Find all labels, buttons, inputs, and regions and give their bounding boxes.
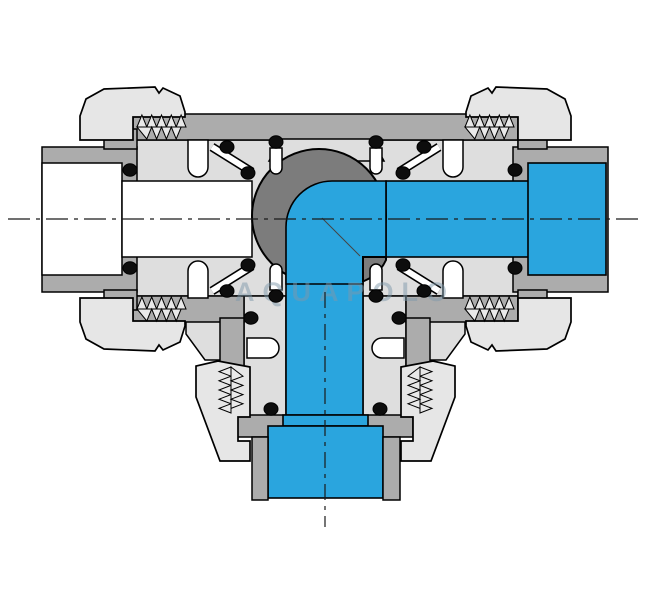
- bottom-socket-wall-right: [383, 437, 400, 500]
- o-ring-seal-1: [220, 141, 234, 153]
- stem-seal-cavity-top-right: [370, 148, 382, 174]
- o-ring-seal-14: [123, 262, 137, 274]
- cavity-bottom-left: [188, 261, 208, 298]
- valve-section-drawing: AQUAPOLO: [0, 0, 650, 591]
- body-lobe-left: [186, 318, 222, 360]
- stem-seal-cavity-top-left: [270, 148, 282, 174]
- cavity-top-right: [443, 140, 463, 177]
- body-lobe-right: [429, 318, 465, 360]
- o-ring-seal-9: [269, 290, 283, 302]
- cavity-branch-right: [372, 338, 404, 358]
- o-ring-seal-6: [396, 167, 410, 179]
- bottom-socket-wall-left: [252, 437, 268, 500]
- o-ring-seal-15: [508, 164, 522, 176]
- cavity-branch-left: [247, 338, 279, 358]
- o-ring-seal-4: [369, 136, 383, 148]
- o-ring-seal-18: [392, 312, 406, 324]
- o-ring-seal-11: [241, 259, 255, 271]
- o-ring-seal-8: [417, 285, 431, 297]
- o-ring-seal-19: [264, 403, 278, 415]
- o-ring-seal-10: [369, 290, 383, 302]
- o-ring-seal-16: [508, 262, 522, 274]
- body-top-wall: [133, 114, 518, 140]
- o-ring-seal-12: [396, 259, 410, 271]
- o-ring-seal-3: [269, 136, 283, 148]
- o-ring-seal-13: [123, 164, 137, 176]
- o-ring-seal-17: [244, 312, 258, 324]
- o-ring-seal-20: [373, 403, 387, 415]
- o-ring-seal-7: [220, 285, 234, 297]
- cavity-top-left: [188, 140, 208, 177]
- o-ring-seal-5: [241, 167, 255, 179]
- o-ring-seal-2: [417, 141, 431, 153]
- valve-section-svg: AQUAPOLO: [0, 0, 650, 591]
